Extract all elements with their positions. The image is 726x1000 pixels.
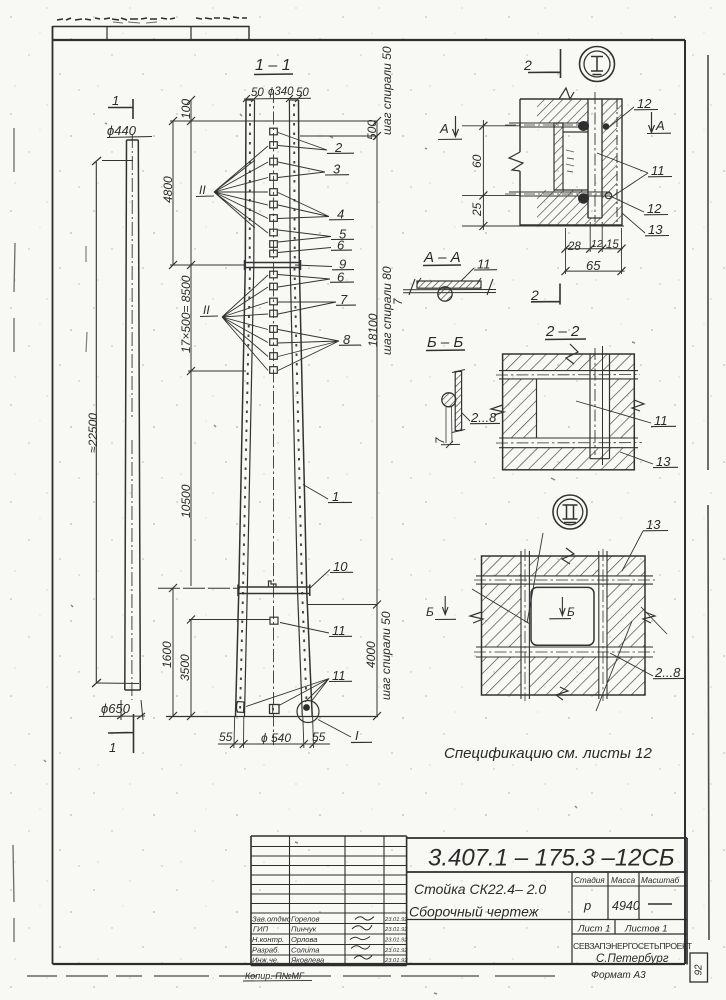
- svg-text:Инж.че.: Инж.че.: [252, 956, 279, 965]
- svg-text:р: р: [583, 898, 591, 913]
- svg-text:23.01.92: 23.01.92: [384, 917, 408, 923]
- svg-text:1: 1: [332, 489, 339, 504]
- svg-text:17×500= 8500: 17×500= 8500: [179, 275, 193, 353]
- svg-text:25: 25: [470, 202, 484, 217]
- svg-text:23.01.92: 23.01.92: [384, 958, 408, 964]
- svg-text:1: 1: [112, 93, 119, 108]
- svg-text:12: 12: [637, 96, 652, 111]
- svg-text:1 – 1: 1 – 1: [255, 57, 291, 74]
- svg-text:11: 11: [332, 668, 346, 683]
- svg-text:Стадия: Стадия: [574, 876, 605, 885]
- svg-text:2: 2: [530, 287, 539, 303]
- svg-text:2...8: 2...8: [654, 665, 681, 680]
- svg-text:12: 12: [591, 238, 603, 250]
- svg-text:2 – 2: 2 – 2: [545, 323, 580, 340]
- svg-text:28: 28: [567, 241, 581, 253]
- svg-text:А: А: [439, 121, 449, 136]
- svg-text:11: 11: [332, 623, 346, 638]
- svg-text:23.01.92: 23.01.92: [384, 927, 408, 933]
- svg-text:4000: 4000: [364, 641, 378, 668]
- svg-text:Пинчук: Пинчук: [291, 925, 317, 934]
- svg-text:ϕ340: ϕ340: [268, 86, 294, 98]
- svg-text:ϕ 540: ϕ 540: [261, 731, 291, 745]
- svg-text:1: 1: [109, 740, 116, 755]
- svg-text:Б: Б: [426, 605, 434, 619]
- svg-text:шаг спирали 50: шаг спирали 50: [379, 611, 393, 700]
- svg-text:Солита: Солита: [291, 946, 320, 955]
- svg-text:4800: 4800: [161, 176, 175, 203]
- svg-text:II: II: [199, 183, 206, 197]
- svg-text:С.Петербург: С.Петербург: [596, 953, 669, 965]
- svg-text:50: 50: [251, 87, 264, 99]
- svg-text:Б – Б: Б – Б: [427, 334, 463, 351]
- svg-text:12: 12: [647, 201, 662, 216]
- svg-text:15: 15: [606, 239, 619, 251]
- svg-text:Яковлева: Яковлева: [290, 956, 324, 965]
- svg-text:Стойка СК22.4– 2.0: Стойка СК22.4– 2.0: [414, 881, 546, 897]
- svg-text:7: 7: [435, 437, 447, 444]
- svg-text:≈22500: ≈22500: [86, 413, 100, 453]
- svg-text:Сборочный чертеж: Сборочный чертеж: [409, 904, 540, 920]
- svg-text:10: 10: [333, 559, 348, 574]
- svg-text:23.01.92: 23.01.92: [384, 938, 408, 944]
- svg-text:10500: 10500: [179, 484, 193, 518]
- svg-text:2...8: 2...8: [470, 410, 497, 425]
- svg-text:Орлова: Орлова: [291, 935, 318, 944]
- svg-text:55: 55: [312, 730, 326, 744]
- svg-text:2: 2: [523, 57, 532, 73]
- svg-text:Лист 1: Лист 1: [577, 924, 610, 935]
- svg-text:11: 11: [477, 257, 491, 272]
- svg-text:23.01.92: 23.01.92: [384, 948, 408, 954]
- svg-text:А: А: [655, 118, 665, 133]
- svg-text:7: 7: [393, 298, 405, 305]
- svg-text:3.407.1 – 175.3 –12СБ: 3.407.1 – 175.3 –12СБ: [428, 845, 674, 872]
- svg-text:13: 13: [656, 454, 671, 469]
- svg-text:11: 11: [651, 163, 665, 178]
- svg-text:55: 55: [219, 730, 233, 744]
- svg-text:Н.контр.: Н.контр.: [252, 935, 284, 944]
- svg-text:3500: 3500: [178, 654, 192, 681]
- svg-text:92: 92: [694, 964, 705, 976]
- svg-text:50: 50: [296, 87, 309, 99]
- svg-text:шаг спирали 50: шаг спирали 50: [380, 46, 394, 135]
- svg-text:Масштаб: Масштаб: [641, 876, 680, 885]
- svg-text:Формат А3: Формат А3: [591, 970, 646, 981]
- svg-text:4940: 4940: [612, 899, 640, 913]
- svg-text:Копир. П№МГ: Копир. П№МГ: [245, 971, 305, 981]
- svg-text:Спецификацию см. листы 12: Спецификацию см. листы 12: [444, 745, 652, 762]
- svg-text:1600: 1600: [160, 641, 174, 668]
- svg-text:18100: 18100: [366, 313, 380, 347]
- svg-text:ϕ650: ϕ650: [101, 701, 131, 716]
- svg-text:60: 60: [470, 154, 484, 168]
- svg-text:Масса: Масса: [611, 876, 636, 885]
- svg-text:I: I: [355, 728, 359, 743]
- svg-text:3: 3: [333, 162, 341, 177]
- svg-text:Зав.отдмс: Зав.отдмс: [252, 915, 291, 924]
- svg-text:13: 13: [646, 517, 661, 532]
- svg-text:Б: Б: [567, 605, 575, 619]
- svg-text:11: 11: [654, 413, 668, 428]
- svg-text:65: 65: [586, 258, 601, 273]
- svg-text:II: II: [203, 303, 210, 317]
- svg-text:СЕВЗАПЭНЕРГОСЕТЬПРОЕКТ: СЕВЗАПЭНЕРГОСЕТЬПРОЕКТ: [573, 941, 693, 951]
- svg-text:шаг спирали 80: шаг спирали 80: [380, 266, 394, 355]
- svg-text:Листов 1: Листов 1: [624, 924, 668, 935]
- svg-text:500: 500: [365, 120, 379, 140]
- svg-text:ГИП: ГИП: [253, 925, 269, 934]
- svg-text:100: 100: [179, 99, 193, 119]
- svg-text:13: 13: [648, 222, 663, 237]
- svg-text:Разраб.: Разраб.: [252, 946, 279, 955]
- svg-text:А – А: А – А: [423, 249, 461, 266]
- svg-text:Горелов: Горелов: [291, 915, 320, 924]
